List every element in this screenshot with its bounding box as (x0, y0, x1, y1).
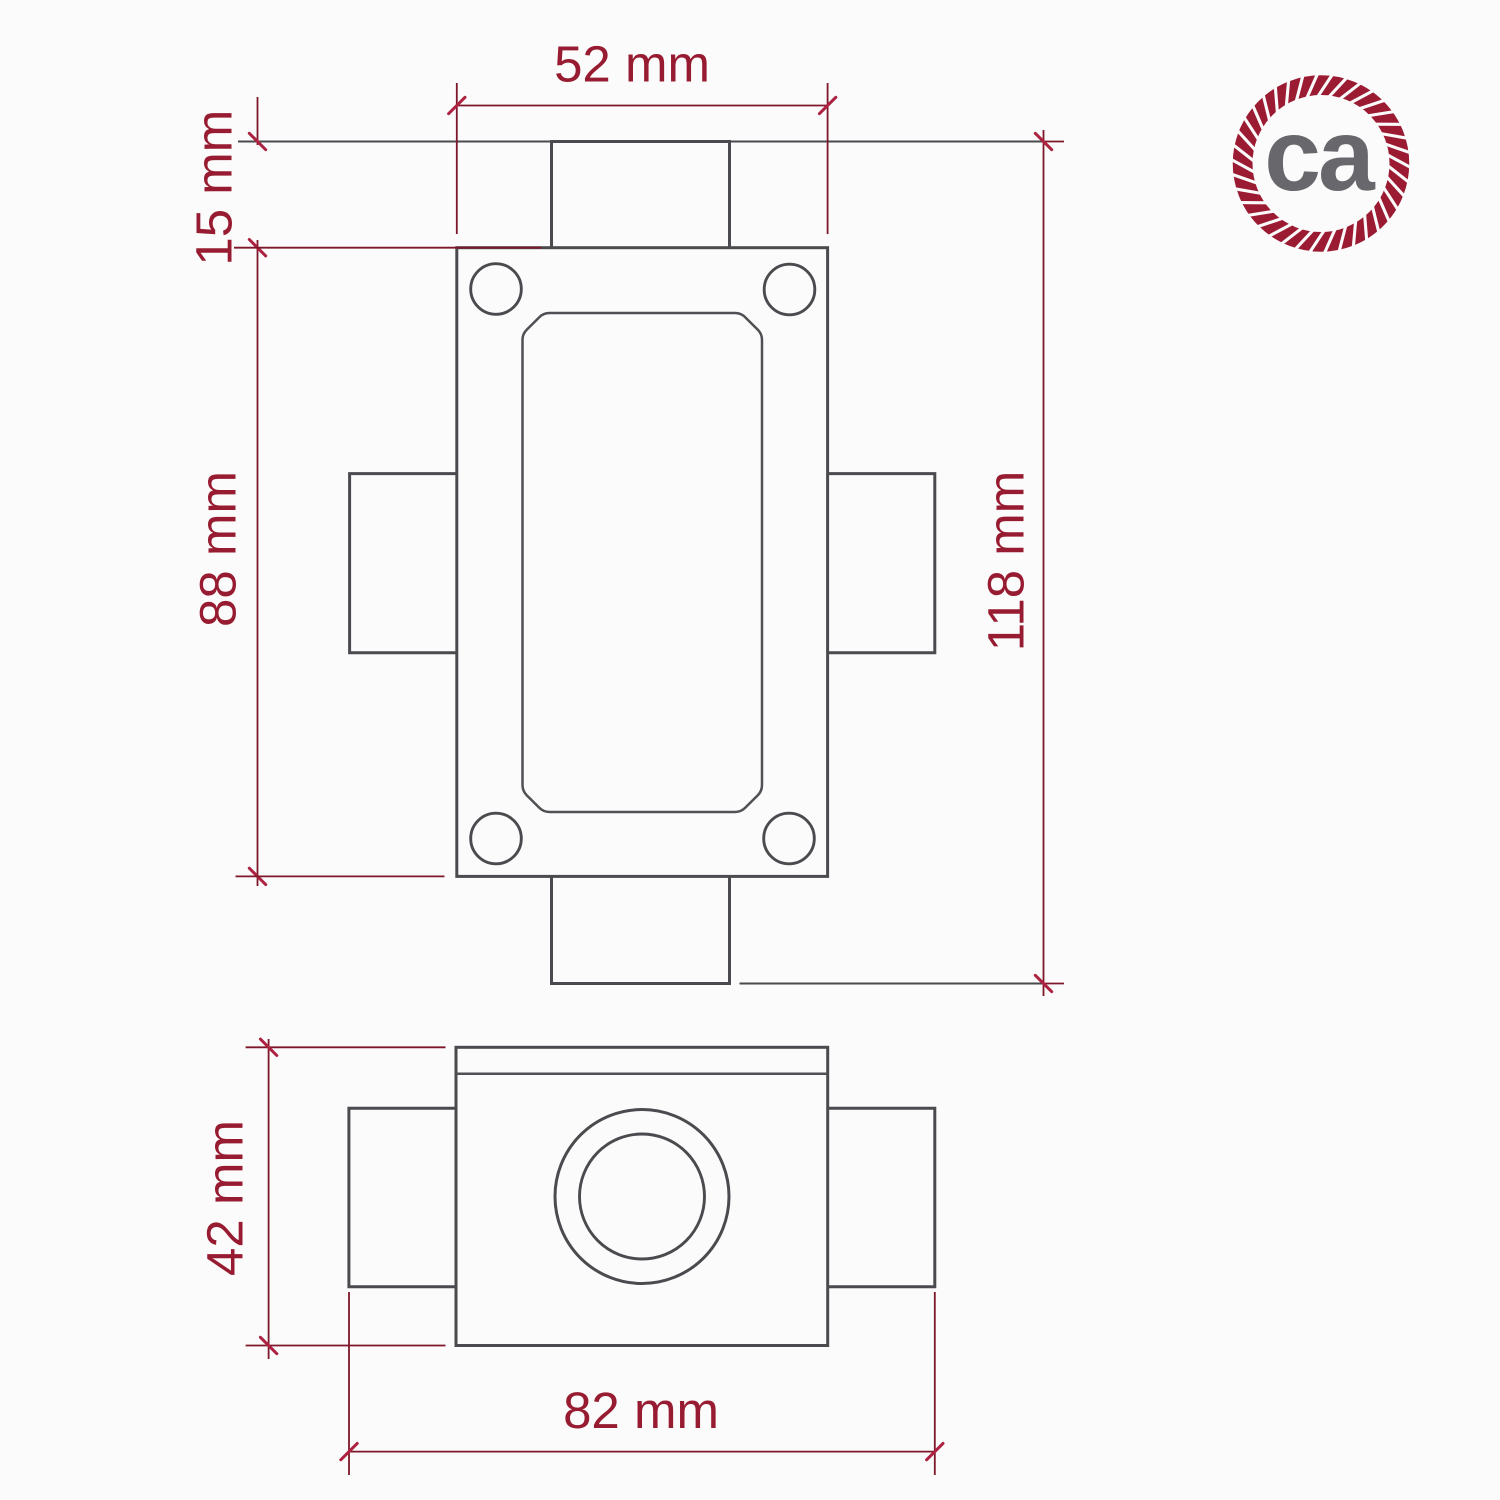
svg-text:118 mm: 118 mm (977, 471, 1034, 651)
svg-text:15 mm: 15 mm (186, 110, 243, 266)
svg-text:ca: ca (1264, 98, 1376, 212)
svg-text:82 mm: 82 mm (563, 1382, 719, 1439)
svg-text:52 mm: 52 mm (554, 36, 710, 93)
svg-text:42 mm: 42 mm (196, 1120, 253, 1276)
svg-text:88 mm: 88 mm (189, 471, 246, 627)
